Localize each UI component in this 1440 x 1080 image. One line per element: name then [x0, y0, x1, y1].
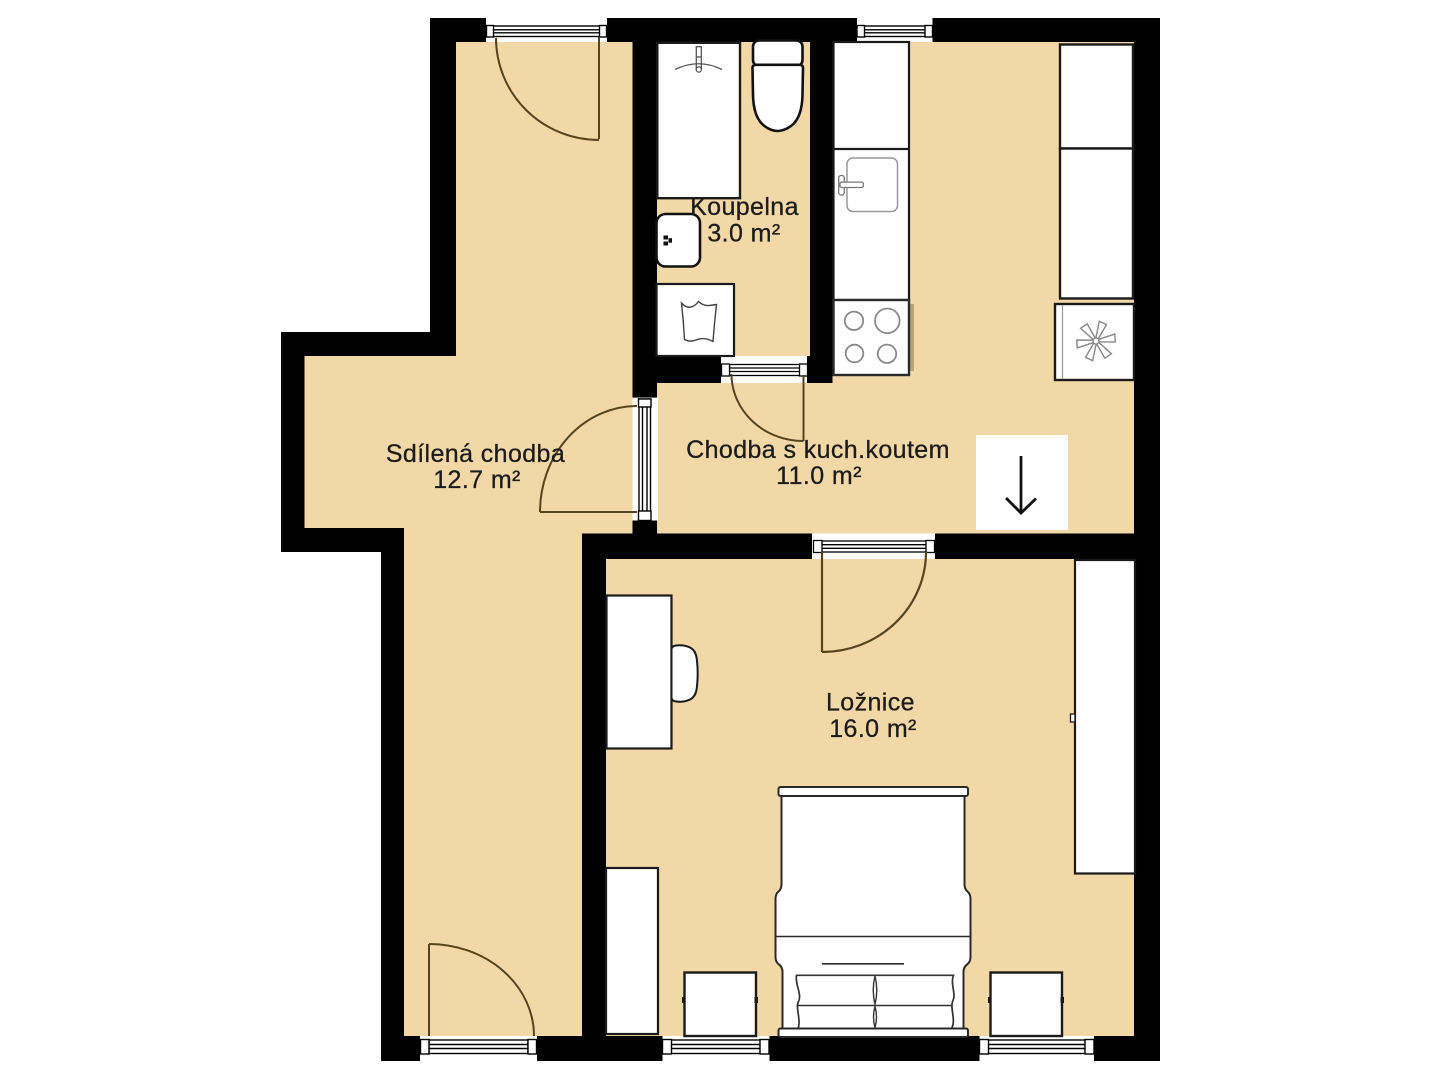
svg-text:Chodba s kuch.koutem: Chodba s kuch.koutem: [686, 436, 950, 464]
svg-text:16.0 m²: 16.0 m²: [829, 715, 917, 743]
svg-text:Sdílená chodba: Sdílená chodba: [386, 440, 565, 468]
svg-text:12.7 m²: 12.7 m²: [433, 466, 521, 494]
svg-text:11.0 m²: 11.0 m²: [776, 462, 862, 490]
svg-text:Koupelna: Koupelna: [690, 193, 799, 221]
svg-text:Ložnice: Ložnice: [826, 689, 915, 717]
svg-text:3.0 m²: 3.0 m²: [707, 220, 780, 248]
